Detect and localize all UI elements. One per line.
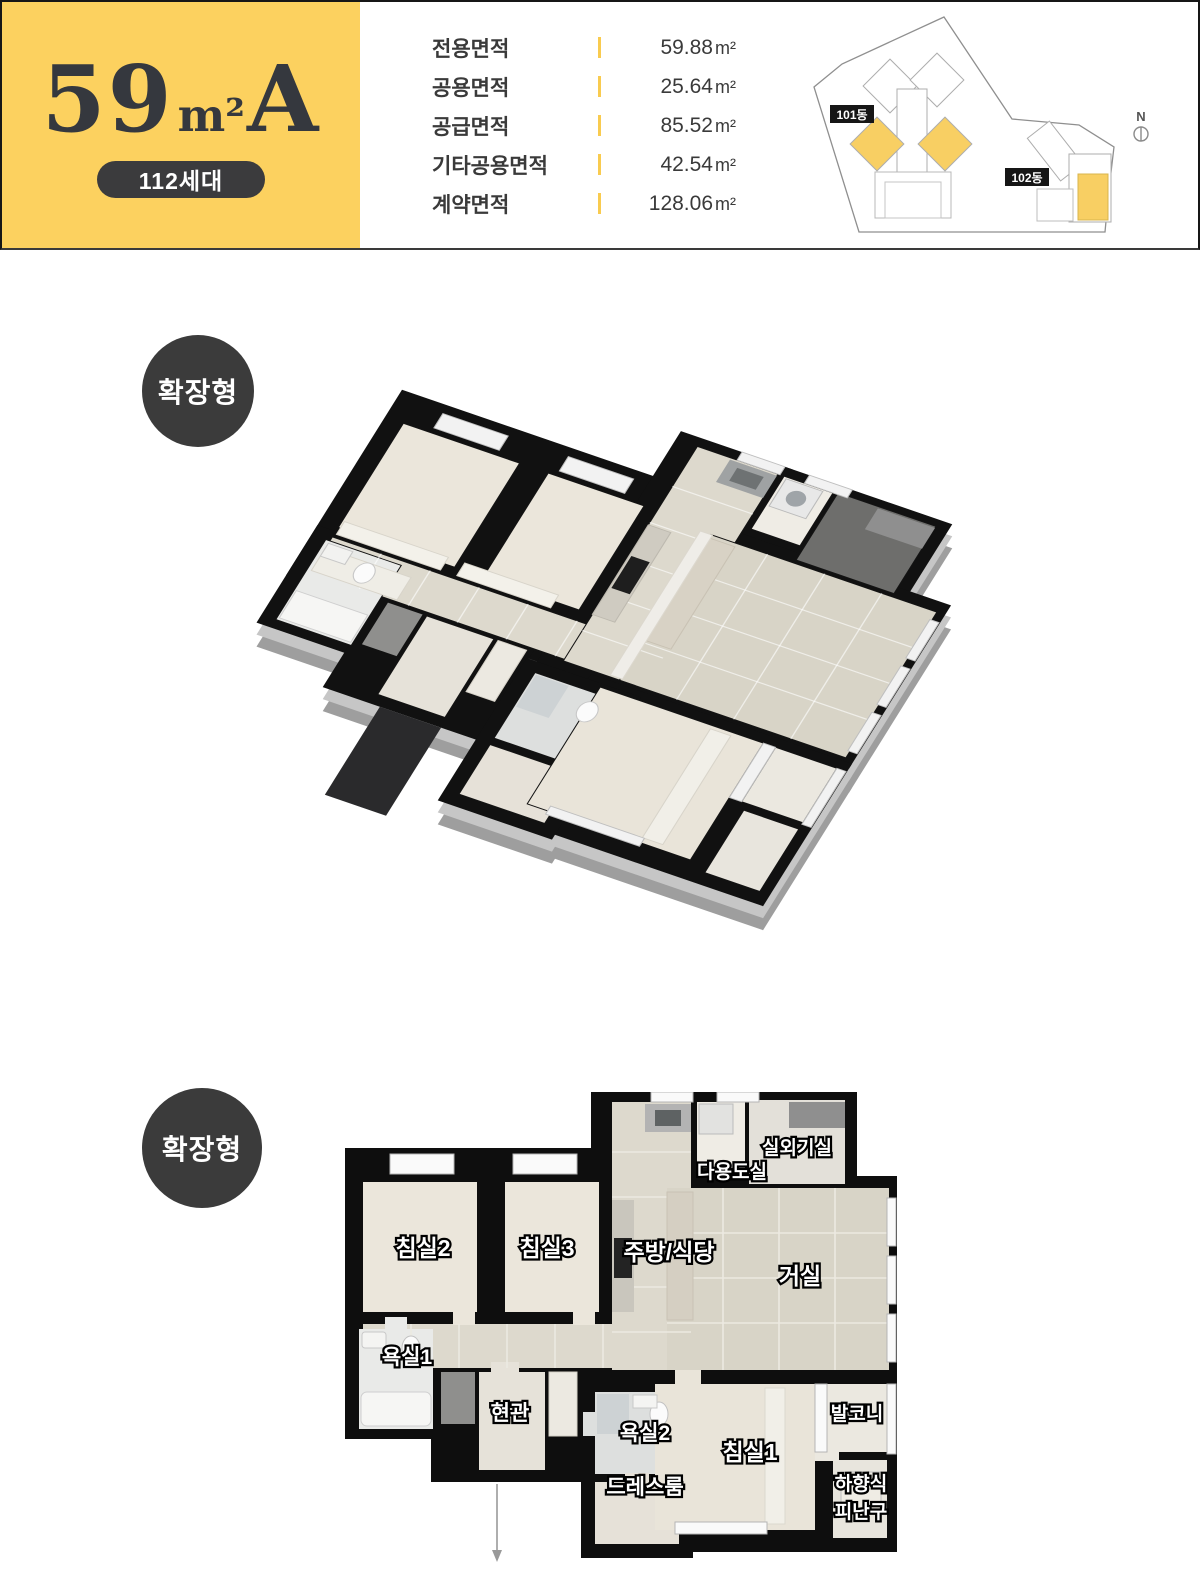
bedroom1-label: 침실1: [722, 1439, 777, 1465]
spec-label: 공용면적: [432, 72, 584, 102]
spec-divider: [598, 154, 601, 175]
spec-value: 59.88m²: [614, 36, 736, 60]
iso-entry-door: [325, 707, 441, 816]
unit-size: 59: [42, 53, 174, 145]
isometric-plan-section: 확장형: [0, 250, 1200, 1050]
entry-arrow: [492, 1484, 502, 1562]
building-base: [875, 172, 951, 218]
sink-basin: [655, 1110, 681, 1126]
spec-divider: [598, 115, 601, 136]
shoe-closet: [549, 1372, 577, 1436]
ac-room-label: 실외기실: [762, 1137, 832, 1159]
extended-type-badge-2d: 확장형: [142, 1088, 262, 1208]
spec-unit: m²: [715, 194, 736, 214]
households-badge: 112세대: [97, 161, 265, 198]
building-101-text: 101동: [836, 108, 867, 122]
spec-unit: m²: [715, 38, 736, 58]
building-102-label: 102동: [1005, 168, 1049, 186]
spec-unit: m²: [715, 155, 736, 175]
escape-label-1: 하향식: [835, 1473, 887, 1495]
spec-divider: [598, 37, 601, 58]
spec-divider: [598, 193, 601, 214]
spec-value: 128.06m²: [614, 192, 736, 216]
unit-size-unit: m²: [178, 93, 245, 138]
compass-n-text: N: [1136, 109, 1145, 124]
unit-type-letter: A: [247, 53, 320, 145]
building-101-label: 101동: [830, 105, 874, 123]
utility-label: 다용도실: [697, 1161, 767, 1183]
header-band: 59 m² A 112세대 전용면적 59.88m² 공용면적 25.64m² …: [0, 0, 1200, 250]
compass-icon: N: [1134, 109, 1148, 141]
bath1-label: 욕실1: [382, 1346, 433, 1369]
bedroom3-label: 침실3: [519, 1235, 574, 1261]
building-base: [1037, 189, 1073, 221]
area-spec-table: 전용면적 59.88m² 공용면적 25.64m² 공급면적 85.52m² 기…: [432, 28, 736, 223]
living-label: 거실: [779, 1263, 821, 1289]
balcony-label: 발코니: [831, 1403, 883, 1425]
flat-floor-plan: 침실2 침실3 주방/식당 거실 실외기실 다용도실 욕실1 현관 욕실2 드레…: [345, 1092, 897, 1570]
spec-value: 42.54m²: [614, 153, 736, 177]
isometric-floor-plan: [0, 310, 1200, 1000]
washer: [699, 1104, 733, 1134]
spec-row-common: 공용면적 25.64m²: [432, 67, 736, 106]
site-plan-map: 101동 102동 N: [797, 4, 1189, 246]
spec-label: 공급면적: [432, 111, 584, 141]
spec-number: 59.88: [660, 36, 713, 59]
entrance-label: 현관: [491, 1402, 530, 1425]
spec-value: 85.52m²: [614, 114, 736, 138]
spec-row-exclusive: 전용면적 59.88m²: [432, 28, 736, 67]
bedroom2-label: 침실2: [395, 1235, 450, 1261]
highlighted-unit: [1078, 174, 1108, 220]
spec-label: 전용면적: [432, 33, 584, 63]
ac-hatch: [789, 1102, 845, 1128]
spec-unit: m²: [715, 77, 736, 97]
spec-unit: m²: [715, 116, 736, 136]
unit-title: 59 m² A: [42, 53, 321, 145]
building-102-text: 102동: [1011, 171, 1042, 185]
unit-type-block: 59 m² A 112세대: [2, 2, 360, 248]
spec-divider: [598, 76, 601, 97]
bathtub: [361, 1392, 431, 1426]
spec-number: 85.52: [660, 114, 713, 137]
entry-closet: [441, 1372, 475, 1424]
spec-number: 128.06: [649, 192, 713, 215]
kitchen-label: 주방/식당: [623, 1239, 714, 1265]
spec-label: 기타공용면적: [432, 150, 584, 180]
flat-plan-section: 확장형: [0, 1050, 1200, 1564]
spec-value: 25.64m²: [614, 75, 736, 99]
bath2-sink: [633, 1395, 657, 1408]
spec-row-supply: 공급면적 85.52m²: [432, 106, 736, 145]
spec-row-contract: 계약면적 128.06m²: [432, 184, 736, 223]
spec-number: 25.64: [660, 75, 713, 98]
bath2-label: 욕실2: [620, 1422, 670, 1445]
spec-label: 계약면적: [432, 189, 584, 219]
escape-label-2: 피난구: [835, 1501, 887, 1523]
spec-number: 42.54: [660, 153, 713, 176]
dressroom-label: 드레스룸: [606, 1476, 683, 1499]
spec-row-other-common: 기타공용면적 42.54m²: [432, 145, 736, 184]
